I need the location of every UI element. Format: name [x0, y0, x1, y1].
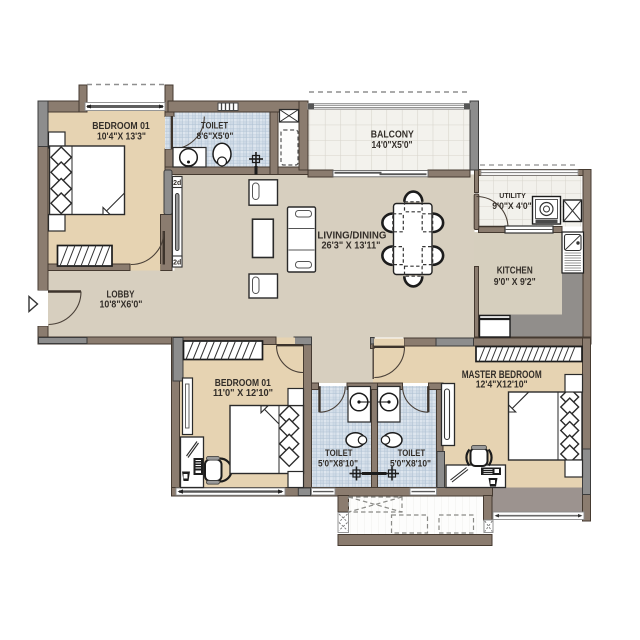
svg-text:TOILET: TOILET [325, 448, 353, 459]
svg-text:TOILET: TOILET [398, 448, 426, 459]
svg-text:9'0" X 9'2": 9'0" X 9'2" [494, 277, 536, 288]
svg-text:26'3" X 13'11": 26'3" X 13'11" [322, 240, 381, 251]
svg-text:10'4"X 13'3": 10'4"X 13'3" [97, 132, 146, 143]
svg-text:11'0" X 12'10": 11'0" X 12'10" [213, 388, 273, 399]
svg-text:12'4"X12'10": 12'4"X12'10" [476, 380, 528, 391]
svg-text:TOILET: TOILET [201, 120, 228, 131]
svg-text:10'8"X6'0": 10'8"X6'0" [100, 300, 143, 311]
svg-text:14'0"X5'0": 14'0"X5'0" [372, 140, 413, 151]
svg-text:8'6"X5'0": 8'6"X5'0" [197, 131, 234, 141]
svg-text:9'0"X 4'0": 9'0"X 4'0" [492, 201, 532, 211]
svg-text:5'0"X8'10": 5'0"X8'10" [390, 459, 431, 469]
svg-text:UTILITY: UTILITY [499, 191, 526, 200]
svg-text:KITCHEN: KITCHEN [497, 266, 533, 277]
svg-text:2d: 2d [173, 180, 181, 187]
svg-text:2d: 2d [173, 260, 181, 267]
svg-text:BEDROOM 01: BEDROOM 01 [92, 121, 150, 132]
svg-text:BALCONY: BALCONY [371, 129, 414, 140]
svg-text:5'0"X8'10": 5'0"X8'10" [318, 459, 358, 469]
